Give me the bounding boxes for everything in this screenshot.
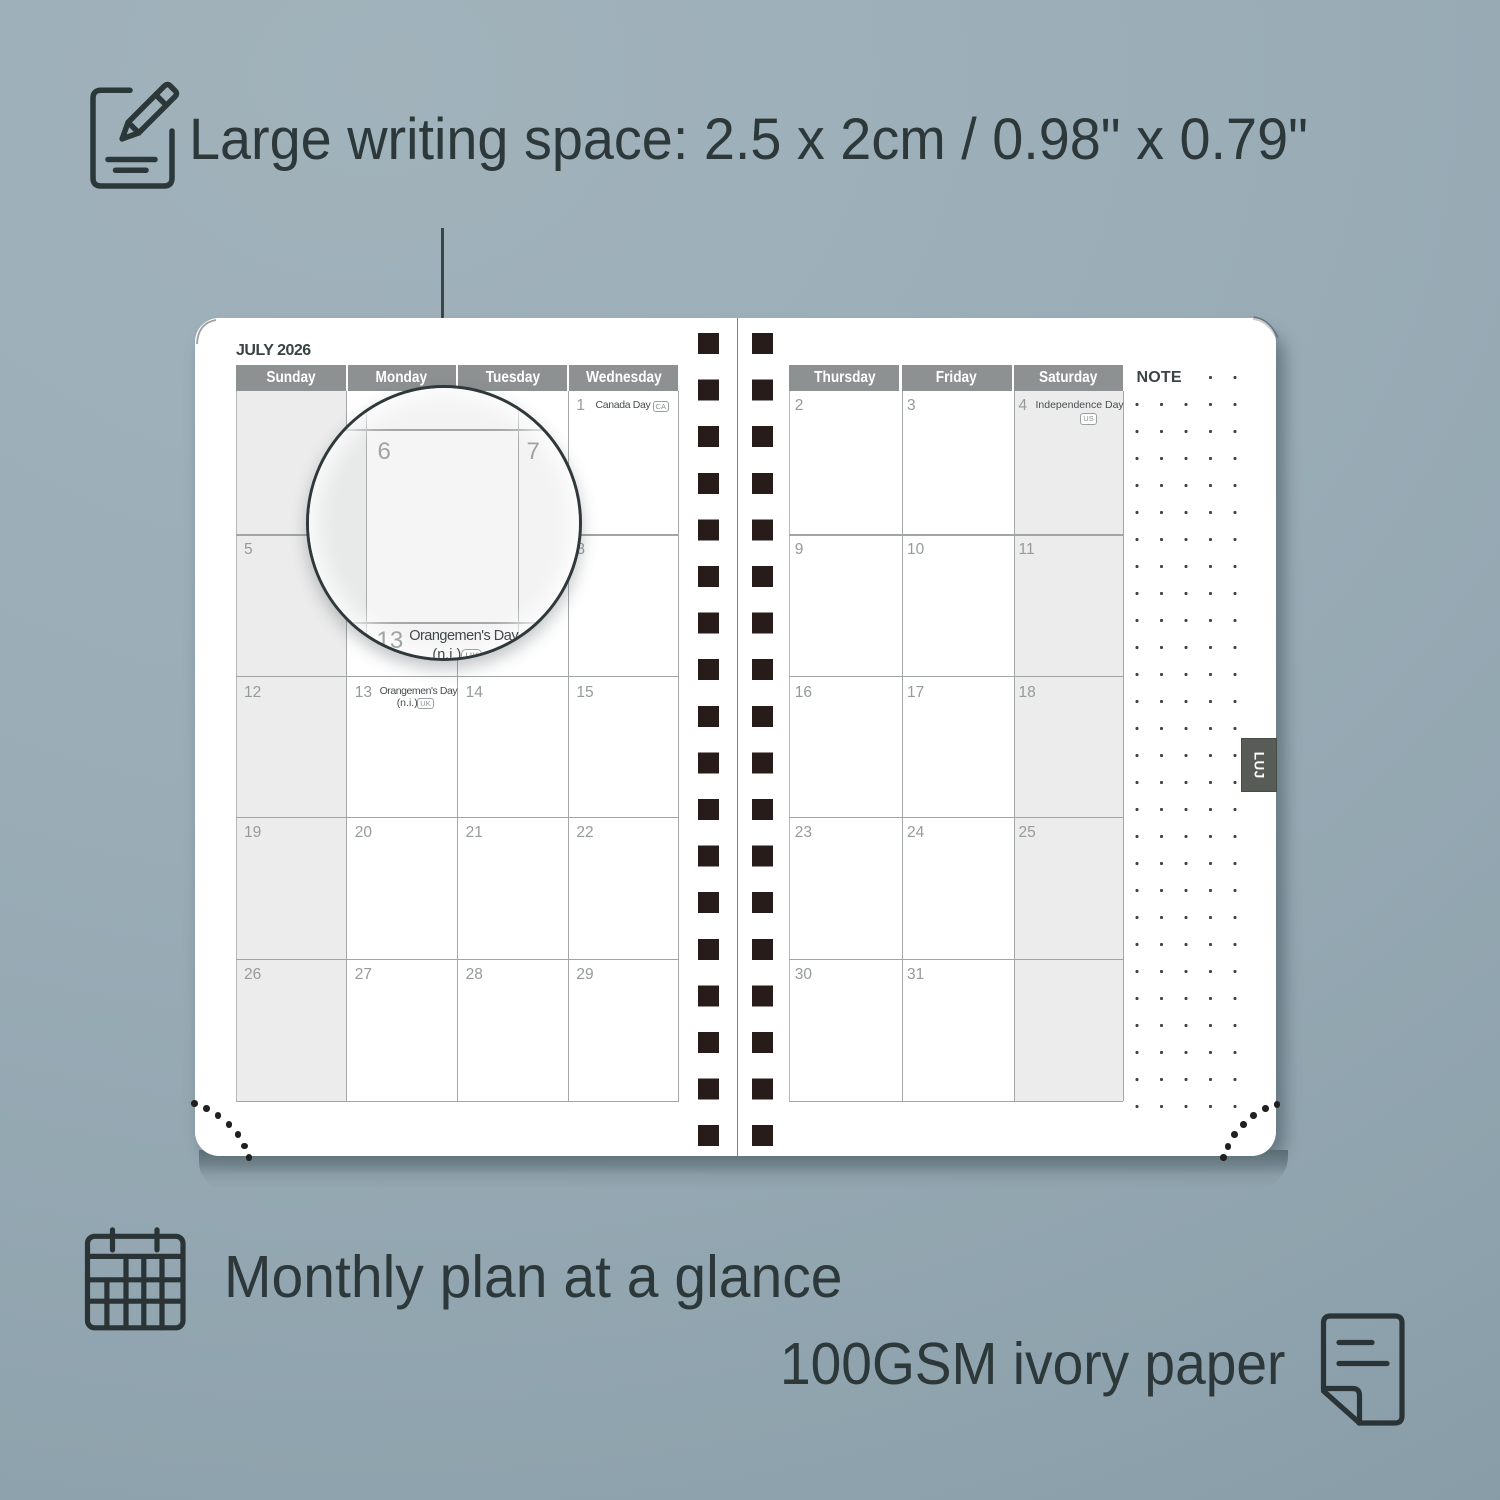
svg-text:LUJ: LUJ	[1251, 751, 1266, 778]
